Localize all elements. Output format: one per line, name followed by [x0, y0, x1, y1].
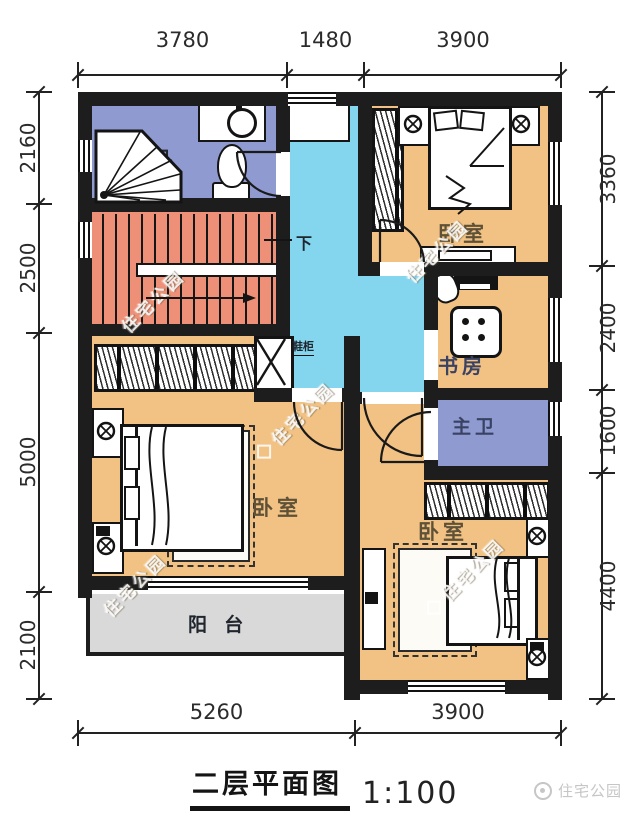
pillow [124, 436, 140, 470]
dim-right-4: 4400 [596, 541, 618, 631]
pillow [504, 598, 519, 628]
window [548, 402, 562, 436]
wall [424, 388, 552, 400]
desk-keyboard [460, 284, 490, 289]
pillow [459, 110, 485, 131]
stairs-down-label: 下 [296, 230, 312, 254]
wardrobe-bottom-left [94, 344, 270, 392]
dimension-line-bottom [78, 732, 562, 734]
door-opening [424, 330, 438, 380]
room-label-balcony: 阳 台 [188, 610, 249, 637]
dim-right-3: 1600 [596, 386, 618, 476]
dim-left-4: 2100 [16, 600, 38, 690]
stair-landing-box [288, 104, 350, 142]
nightstand-item [96, 526, 110, 536]
floor-plan-canvas: 卫 卧室 书房 主卫 卧室 卧室 阳 台 下 鞋柜 住宅公园 住宅公园 住宅公园… [0, 0, 640, 828]
room-label-master-bathroom: 主卫 [452, 412, 498, 439]
dim-right-2: 2400 [596, 283, 618, 373]
nightstand [398, 106, 432, 146]
dim-left-3: 5000 [16, 417, 38, 507]
window [548, 298, 562, 362]
hall-floor-east [360, 268, 424, 398]
dimension-line-left [38, 92, 40, 700]
watermark-diamond-icon [427, 601, 441, 615]
shoe-cabinet-icon [254, 336, 294, 394]
shoe-cabinet-label: 鞋柜 [292, 338, 314, 356]
drawing-title: 二层平面图 1:100 [190, 762, 458, 811]
balcony-railing [86, 652, 348, 656]
pillow [124, 486, 140, 520]
nightstand-item [530, 642, 544, 654]
door-opening [276, 152, 290, 196]
armchair-dot [478, 318, 485, 325]
armchair-dot [462, 334, 469, 341]
wall [276, 104, 290, 336]
dim-top-2: 1480 [287, 28, 364, 52]
door-opening [424, 408, 438, 460]
drawing-title-text: 二层平面图 [190, 762, 350, 811]
logo-icon [534, 782, 552, 800]
room-label-study: 书房 [438, 350, 486, 379]
basin-icon [227, 108, 257, 138]
drawing-scale: 1:100 [362, 776, 458, 811]
window [78, 222, 92, 258]
window [288, 92, 336, 106]
room-label-bedroom-bottom-left: 卧室 [252, 492, 302, 522]
room-label-bathroom: 卫 [152, 144, 170, 170]
pillow [504, 562, 519, 592]
window [78, 140, 92, 172]
balcony-railing [86, 590, 90, 656]
dim-bottom-1: 5260 [78, 700, 355, 724]
sliding-door [148, 576, 308, 590]
brand-logo: 住宅公园 [534, 780, 622, 801]
watermark-diamond-icon [257, 445, 271, 459]
armchair-dot [462, 318, 469, 325]
door-opening [362, 392, 424, 404]
armchair-dot [478, 334, 485, 341]
wall [344, 336, 360, 700]
cabinet-item [365, 592, 378, 604]
bed-headboard [517, 556, 535, 640]
dim-right-1: 3360 [596, 134, 618, 224]
room-label-bedroom-bottom-right: 卧室 [418, 516, 468, 546]
logo-text: 住宅公园 [558, 780, 622, 801]
dim-left-1: 2160 [16, 103, 38, 193]
dim-left-2: 2500 [16, 223, 38, 313]
dim-top-1: 3780 [78, 28, 287, 52]
window [408, 680, 505, 694]
wall [358, 104, 372, 276]
wall [92, 198, 276, 212]
pillow [433, 110, 459, 132]
dimension-line-top [78, 74, 562, 76]
wall [424, 466, 552, 480]
toilet-icon [217, 144, 247, 188]
dim-top-3: 3900 [364, 28, 562, 52]
wardrobe-bottom-right [424, 482, 550, 520]
dim-bottom-2: 3900 [355, 700, 561, 724]
window [548, 142, 562, 205]
